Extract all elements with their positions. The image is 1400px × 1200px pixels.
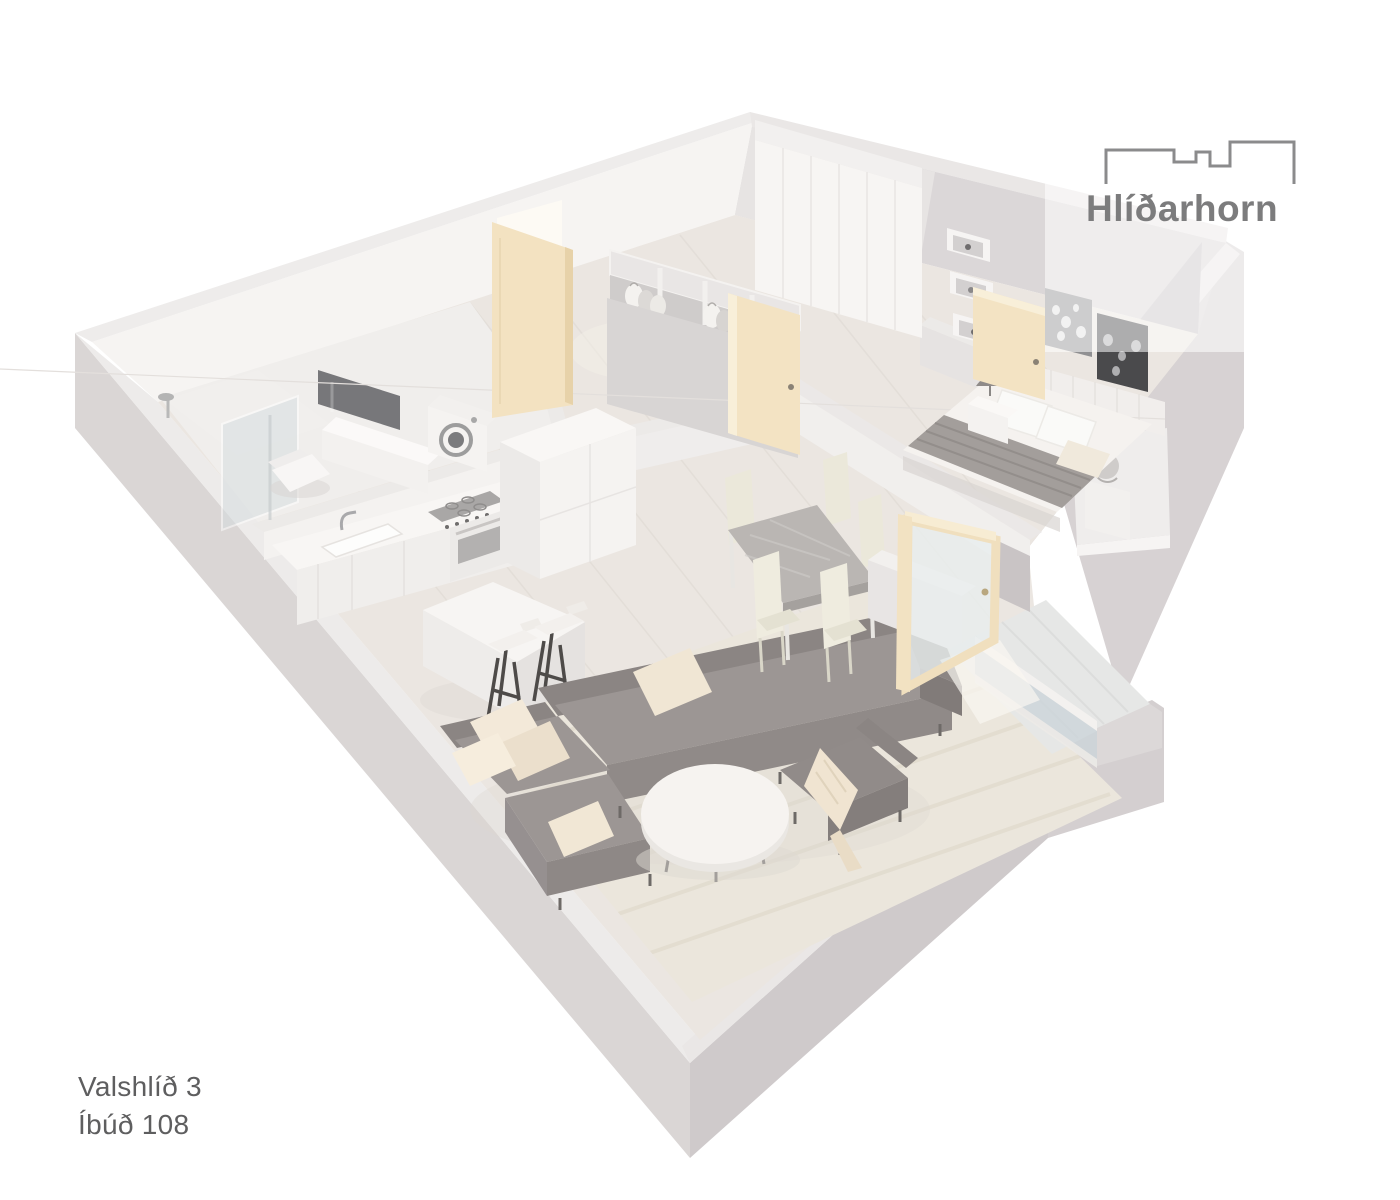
bathroom-door [728,293,800,455]
building-skyline-icon [1104,140,1304,188]
address-street: Valshlíð 3 [78,1068,202,1106]
entrance-door [492,222,573,418]
washer-door-glass [448,432,464,448]
logo: Hlíðarhorn [1086,140,1346,228]
washer-knob [471,417,477,423]
coffee-table-top [641,764,789,864]
shower-head [158,393,174,401]
door-handle [982,589,989,596]
address-unit: Íbúð 108 [78,1106,202,1144]
door-hinge-stile [896,514,912,692]
address-label: Valshlíð 3 Íbúð 108 [78,1068,202,1144]
tall-cabinet-left [500,442,540,579]
logo-text: Hlíðarhorn [1086,190,1346,228]
floorplan-page: Hlíðarhorn Valshlíð 3 Íbúð 108 [0,0,1400,1200]
